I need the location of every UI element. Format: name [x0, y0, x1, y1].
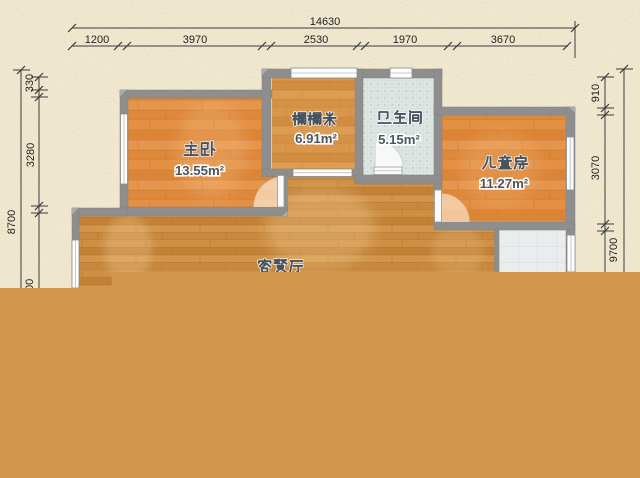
svg-text:6.91m²: 6.91m²	[295, 131, 337, 146]
svg-text:910: 910	[590, 84, 602, 102]
svg-text:3670: 3670	[491, 34, 515, 46]
svg-text:11.27m²: 11.27m²	[480, 176, 529, 191]
svg-text:2530: 2530	[304, 34, 328, 46]
svg-text:1970: 1970	[393, 34, 417, 46]
svg-text:13.55m²: 13.55m²	[175, 163, 225, 178]
svg-text:3280: 3280	[25, 143, 37, 167]
svg-text:5.15m²: 5.15m²	[378, 132, 420, 147]
svg-text:8700: 8700	[6, 210, 18, 234]
svg-text:9700: 9700	[608, 238, 620, 262]
svg-text:3970: 3970	[183, 34, 207, 46]
svg-text:3070: 3070	[590, 156, 602, 180]
svg-text:14630: 14630	[310, 16, 341, 28]
svg-text:330: 330	[24, 74, 36, 92]
svg-text:1200: 1200	[85, 34, 109, 46]
